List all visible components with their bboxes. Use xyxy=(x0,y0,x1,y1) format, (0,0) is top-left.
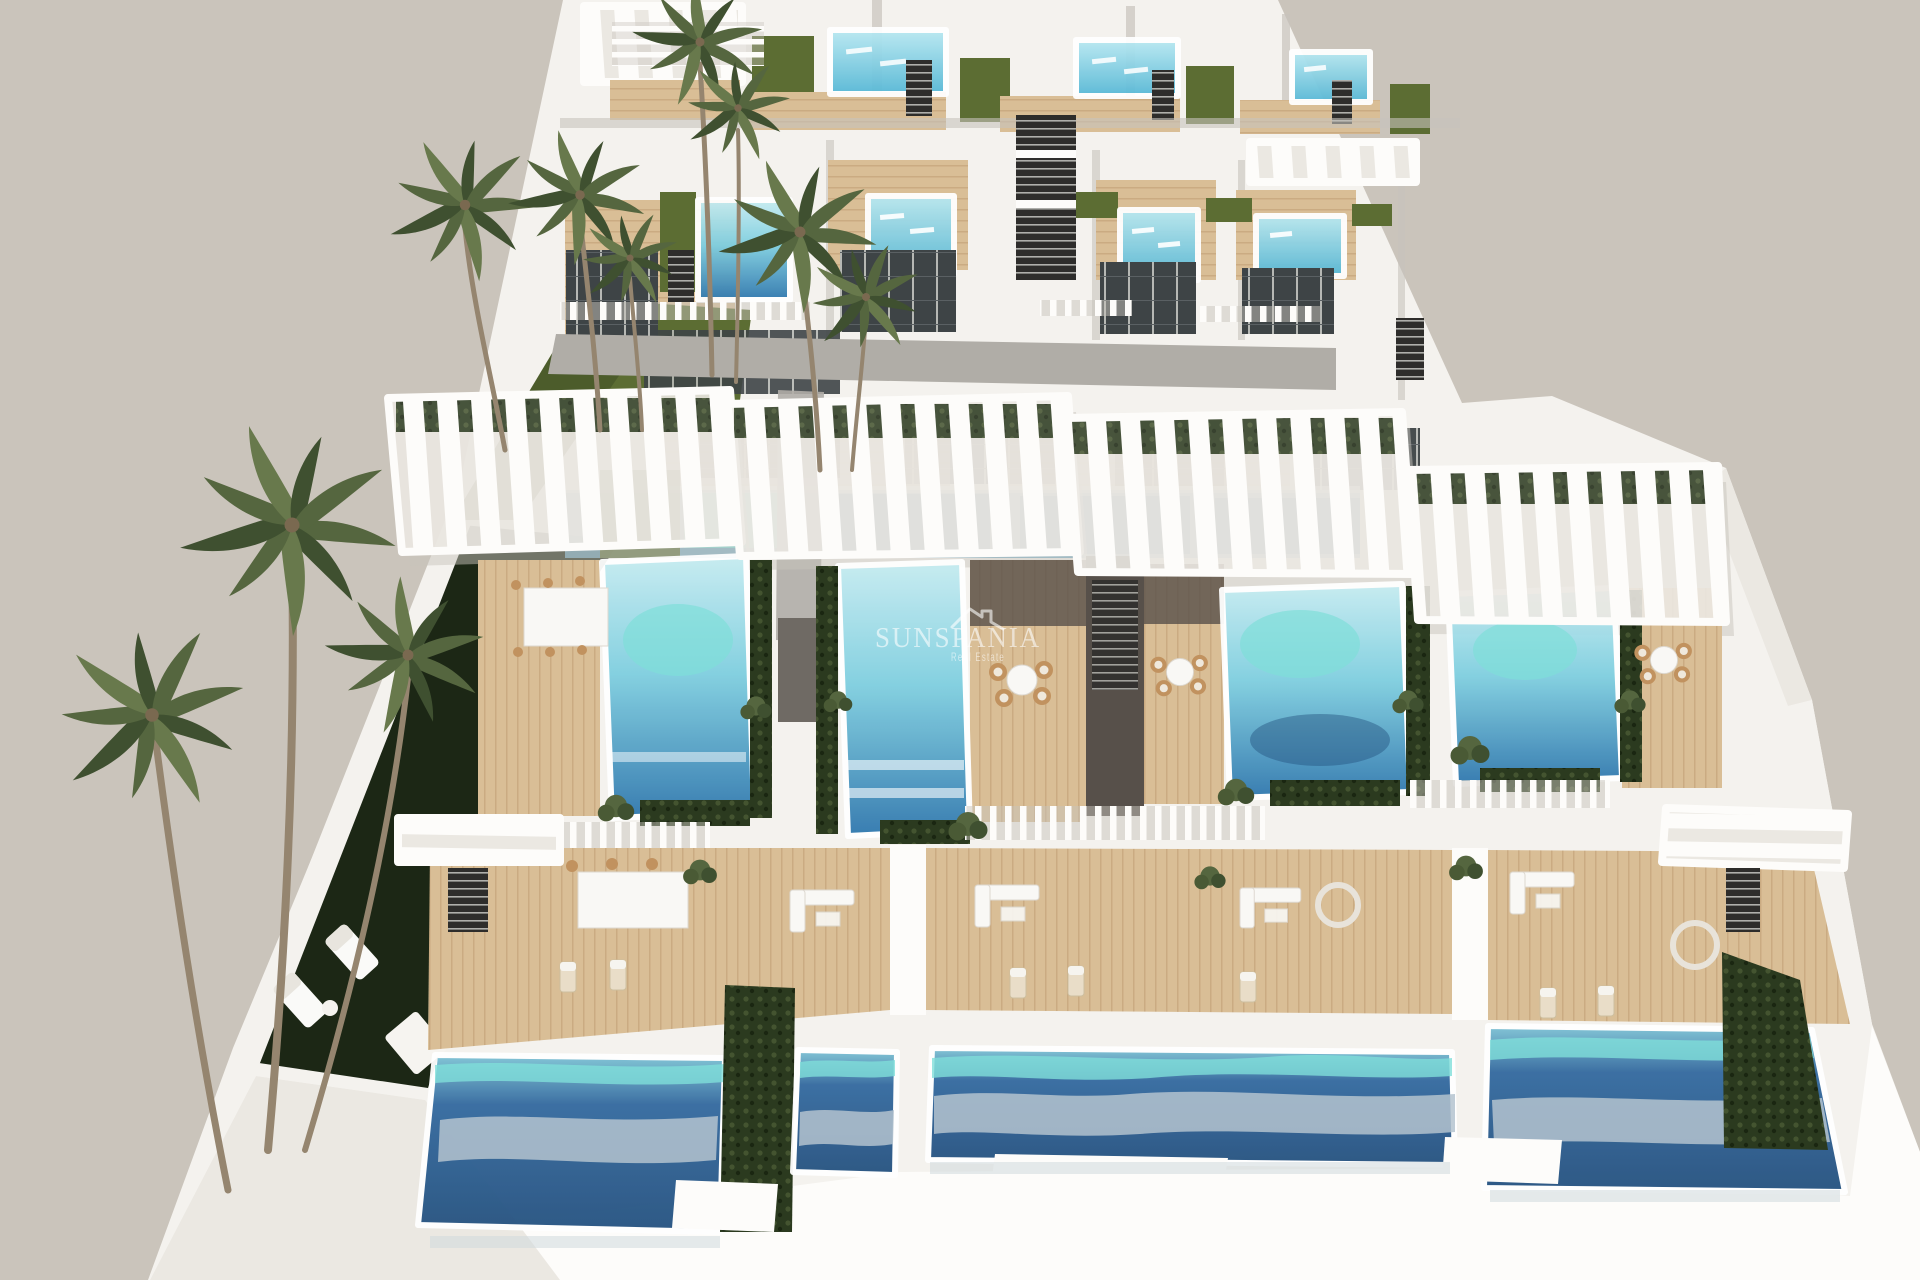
glass-fence xyxy=(930,1162,1450,1174)
glass-facade xyxy=(1242,268,1334,334)
watermark-tagline: Real Estate xyxy=(951,650,1005,664)
balustrade xyxy=(1040,300,1132,316)
balustrade xyxy=(1200,306,1320,322)
roof-plunge-pool-3 xyxy=(1292,52,1370,102)
rooftop-pool-1 xyxy=(602,556,754,818)
shaded-path xyxy=(778,618,822,722)
villa2-deck-shade xyxy=(970,560,1086,626)
green-roof-strip xyxy=(1186,66,1234,124)
lounge-chair xyxy=(1598,986,1614,1016)
terrace-stair xyxy=(1726,868,1760,932)
balustrade xyxy=(1410,780,1610,808)
rooftop-pool-upper-4 xyxy=(1256,216,1344,276)
dining-table xyxy=(578,872,688,928)
lounge-chair xyxy=(610,960,626,990)
lounge-chair xyxy=(1540,988,1556,1018)
lounge-chair xyxy=(560,962,576,992)
balustrade xyxy=(965,806,1265,840)
pool-hedge xyxy=(750,560,772,818)
roof-deck xyxy=(1240,100,1380,134)
pool-step-notch xyxy=(1442,1137,1562,1184)
ground-pool-3 xyxy=(928,1048,1455,1165)
pergola-4 xyxy=(1408,466,1726,622)
divider-wall xyxy=(890,845,926,1015)
glass-facade xyxy=(1100,262,1196,334)
roof-stair xyxy=(1152,70,1174,120)
pergola-3 xyxy=(1066,412,1414,574)
balustrade xyxy=(560,302,810,320)
pergola-1 xyxy=(388,390,742,552)
floor-seam xyxy=(560,118,1460,128)
side-table xyxy=(322,1000,338,1016)
lawn-strip xyxy=(1206,198,1252,222)
slatted-balcony-2 xyxy=(1662,808,1848,868)
pergola-2 xyxy=(728,396,1080,556)
lounge-chair xyxy=(1068,966,1084,996)
render-image: SUNSPANIA Real Estate xyxy=(0,0,1920,1280)
lounge-chair xyxy=(1010,968,1026,998)
lawn-strip xyxy=(1352,204,1392,226)
glass-fence xyxy=(430,1236,720,1248)
lawn-strip xyxy=(1074,192,1118,218)
rooftop-pool-2 xyxy=(838,562,970,836)
roof-stair xyxy=(1332,80,1352,124)
villa-development-render: SUNSPANIA Real Estate xyxy=(0,0,1920,1280)
roof-stair xyxy=(906,60,932,116)
stair-flight xyxy=(1092,580,1138,690)
upper-pergola-right xyxy=(1250,142,1416,182)
terrace-stair xyxy=(448,868,488,932)
rooftop-pool-3 xyxy=(1222,584,1410,798)
balustrade xyxy=(560,822,710,850)
planter xyxy=(1270,780,1400,806)
slatted-balcony-1 xyxy=(398,818,560,862)
terrace-seam xyxy=(1282,14,1290,114)
ground-terrace-center xyxy=(924,848,1452,1014)
lounge-chair xyxy=(1240,972,1256,1002)
villa1-dining-set xyxy=(511,576,608,657)
glass-fence xyxy=(1490,1190,1840,1202)
pool-step-notch xyxy=(672,1180,778,1232)
ground-pool-2 xyxy=(793,1050,897,1175)
